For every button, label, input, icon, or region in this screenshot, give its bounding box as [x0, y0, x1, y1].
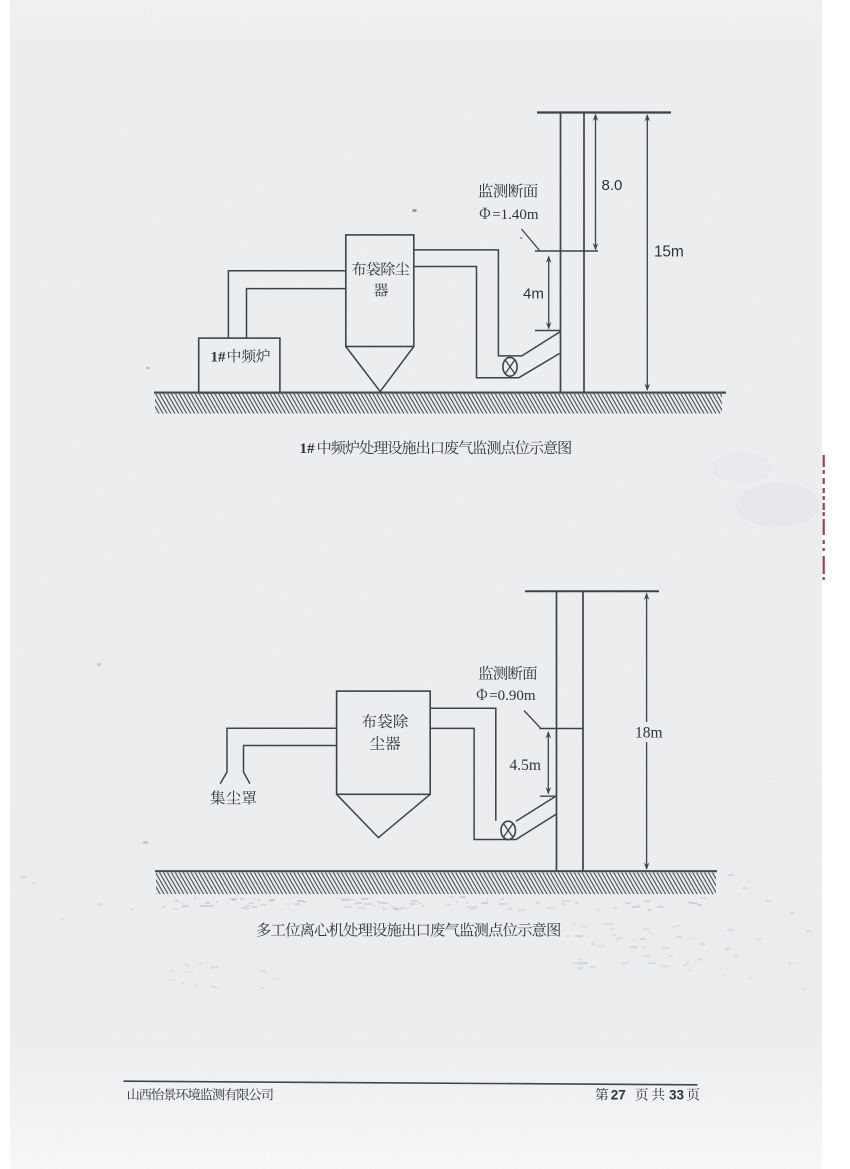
svg-text:4.5m: 4.5m: [510, 757, 541, 774]
svg-text:27: 27: [611, 1087, 626, 1102]
svg-text:15m: 15m: [654, 244, 684, 261]
svg-text:18m: 18m: [635, 725, 663, 742]
svg-text:4m: 4m: [523, 286, 544, 303]
svg-text:1#: 1#: [211, 350, 227, 366]
svg-text:8.0: 8.0: [602, 177, 623, 194]
svg-text:=0.90m: =0.90m: [489, 688, 536, 704]
svg-text:1#: 1#: [300, 441, 316, 457]
svg-text:=1.40m: =1.40m: [492, 207, 539, 223]
svg-text:33: 33: [669, 1087, 685, 1102]
